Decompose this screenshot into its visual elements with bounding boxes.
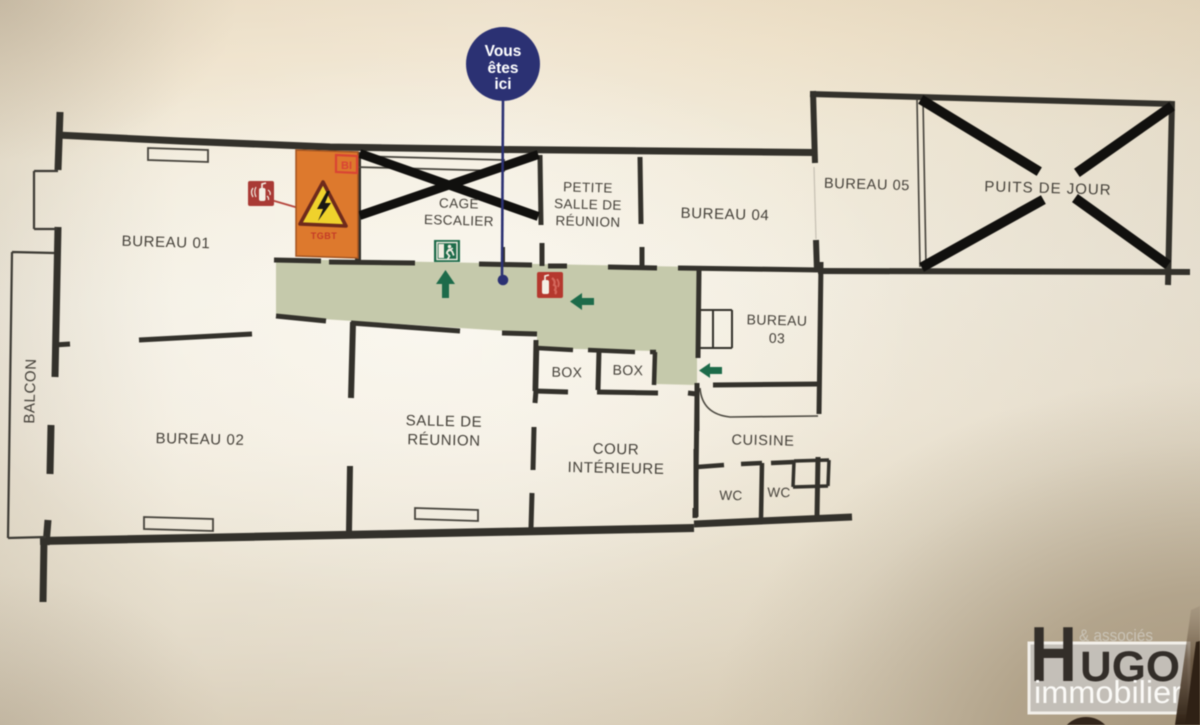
svg-text:BUREAU 04: BUREAU 04 bbox=[680, 205, 769, 224]
svg-text:CUISINE: CUISINE bbox=[731, 432, 794, 449]
svg-text:Vous: Vous bbox=[485, 43, 522, 60]
svg-text:INTÉRIEURE: INTÉRIEURE bbox=[567, 459, 664, 478]
svg-text:PUITS DE JOUR: PUITS DE JOUR bbox=[984, 178, 1112, 199]
svg-text:ici: ici bbox=[494, 76, 511, 93]
svg-text:WC: WC bbox=[767, 485, 791, 500]
svg-text:êtes: êtes bbox=[487, 60, 518, 77]
svg-text:CAGE: CAGE bbox=[439, 195, 479, 211]
svg-text:SALLE DE: SALLE DE bbox=[406, 412, 483, 431]
svg-text:BOX: BOX bbox=[612, 362, 643, 379]
svg-text:BALCON: BALCON bbox=[21, 358, 40, 424]
svg-text:BI: BI bbox=[341, 160, 352, 172]
svg-text:WC: WC bbox=[719, 488, 743, 503]
svg-text:RÉUNION: RÉUNION bbox=[555, 213, 620, 230]
svg-text:RÉUNION: RÉUNION bbox=[407, 431, 481, 450]
svg-text:ESCALIER: ESCALIER bbox=[424, 212, 494, 229]
svg-text:COUR: COUR bbox=[593, 441, 640, 459]
svg-text:BUREAU 05: BUREAU 05 bbox=[824, 176, 910, 194]
svg-text:PETITE: PETITE bbox=[563, 179, 613, 195]
svg-text:BUREAU 02: BUREAU 02 bbox=[155, 430, 244, 449]
svg-text:BUREAU 01: BUREAU 01 bbox=[121, 233, 210, 252]
svg-text:immobilier: immobilier bbox=[1034, 674, 1182, 710]
svg-text:BUREAU: BUREAU bbox=[746, 311, 807, 328]
svg-text:BOX: BOX bbox=[551, 364, 582, 381]
svg-text:03: 03 bbox=[769, 330, 786, 346]
svg-text:TGBT: TGBT bbox=[311, 231, 338, 241]
svg-text:SALLE DE: SALLE DE bbox=[554, 196, 622, 213]
